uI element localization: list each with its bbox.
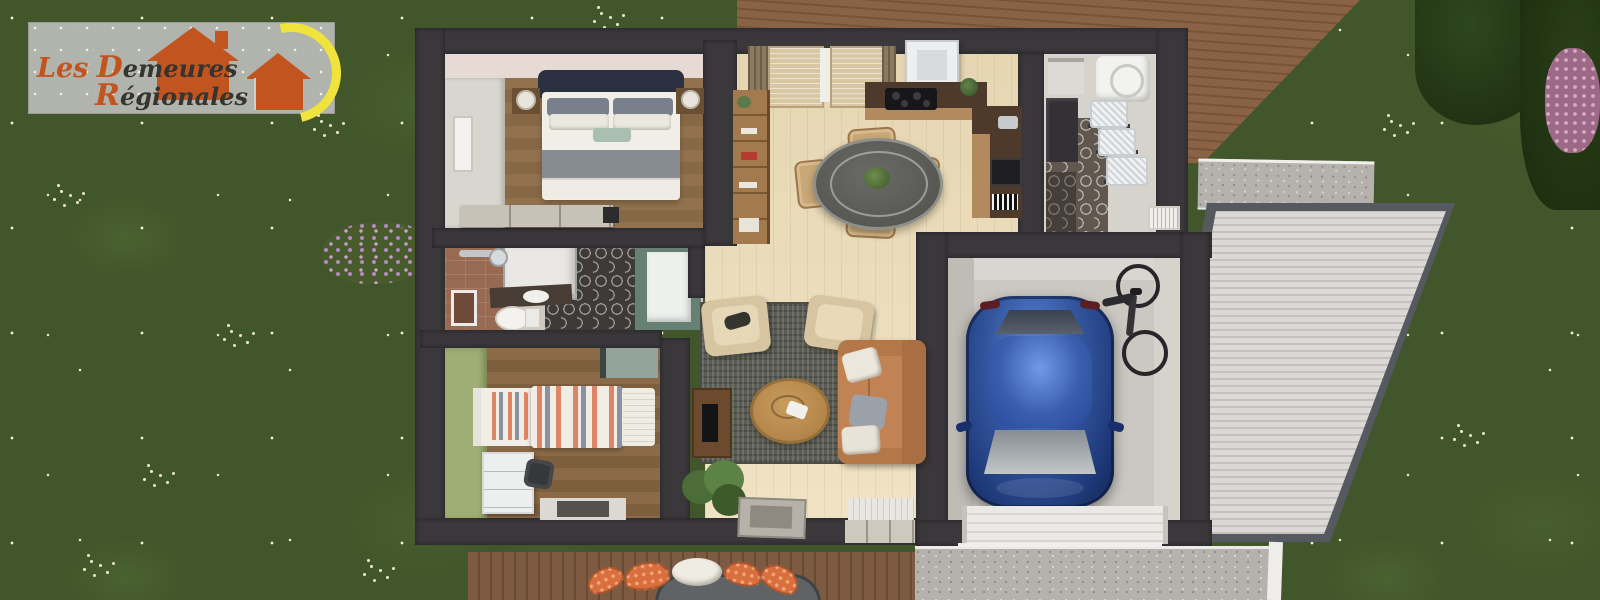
dresser-object <box>603 207 619 223</box>
single-bed <box>473 384 657 450</box>
bicycle <box>1100 262 1162 374</box>
washing-machine <box>1096 56 1150 102</box>
desk-chair <box>523 458 555 490</box>
counter-inner-face <box>972 134 990 218</box>
duvet-foot <box>542 178 680 198</box>
storage-basket <box>1098 128 1136 156</box>
logo-word-les: Les <box>37 53 88 84</box>
window-divider <box>820 48 830 102</box>
laundry-box <box>1048 58 1084 94</box>
shelf-plant <box>737 96 751 108</box>
tv-unit <box>692 388 732 458</box>
bike-seat <box>1130 288 1142 295</box>
window-blind <box>768 46 824 108</box>
tv-screen <box>702 404 718 442</box>
garage-wall-top <box>916 232 1212 258</box>
shower-head-disc <box>489 248 508 267</box>
accent-pillow <box>593 128 631 142</box>
shelf-item-red <box>741 152 757 160</box>
logo-text-line1: Les Demeures <box>37 53 238 83</box>
car <box>966 296 1114 508</box>
floor-mat <box>540 498 626 520</box>
storage-basket <box>1106 156 1148 186</box>
garage-wall-right <box>1180 232 1210 546</box>
wall-niche <box>453 116 473 172</box>
company-logo-panel: Les Demeures Régionales <box>28 22 335 114</box>
flower-cluster <box>600 12 603 15</box>
flower-cluster <box>90 560 93 563</box>
bike-wheel <box>1122 330 1168 376</box>
bathroom-wall-niche <box>451 290 477 326</box>
garage-door-threshold <box>958 543 1162 547</box>
wall-left <box>415 28 445 545</box>
table-lamp <box>516 90 536 110</box>
wall-hall-living <box>688 246 705 298</box>
logo-small-house-body <box>254 78 303 110</box>
cooktop <box>885 88 937 110</box>
hood-vent <box>917 50 947 80</box>
wall-heater <box>1148 206 1180 230</box>
sofa-pillow <box>841 425 881 456</box>
pink-flowering-tree <box>1545 48 1600 153</box>
driveway-edge-strip <box>1267 542 1283 600</box>
garage-door <box>962 506 1168 544</box>
floor-plan-scene: Les Demeures Régionales <box>0 0 1600 600</box>
burner <box>901 100 908 107</box>
armchair <box>700 295 771 358</box>
front-door <box>845 520 915 543</box>
doormat-center <box>750 505 793 528</box>
master-dresser <box>461 205 613 227</box>
striped-pillow <box>487 392 529 440</box>
pink-shrub <box>322 222 430 284</box>
gravel-driveway <box>915 546 1273 600</box>
laundry-floor-shadow <box>1046 172 1076 232</box>
logo-word-regionales-initial: R <box>95 78 120 113</box>
duvet-folded-end <box>623 388 655 446</box>
corner-cabinet <box>600 348 658 378</box>
burner <box>913 92 921 100</box>
flower-cluster <box>1390 120 1393 123</box>
burner <box>892 92 900 100</box>
flower-cluster <box>320 120 323 123</box>
flower-cluster <box>150 470 153 473</box>
outdoor-cushion-white <box>672 558 722 586</box>
shelf-item <box>739 182 757 188</box>
laundry-appliance <box>1046 98 1078 162</box>
flower-cluster <box>230 330 233 333</box>
kitchen-counter-right <box>972 106 1022 218</box>
oven <box>990 158 1022 186</box>
duvet-band <box>542 150 680 178</box>
wall-bathroom-bedroom2 <box>420 330 662 348</box>
nightstand <box>512 88 540 114</box>
wall-bedroom-living <box>703 40 737 246</box>
small-appliance <box>992 194 1018 210</box>
flower-cluster <box>370 565 373 568</box>
coffee-table <box>750 378 830 444</box>
washer-drum <box>1110 64 1144 98</box>
sofa-back <box>902 340 926 464</box>
storage-basket <box>1090 100 1128 128</box>
flower-cluster <box>60 190 63 193</box>
car-hood-shine <box>996 478 1084 498</box>
car-roof <box>988 336 1092 428</box>
floor-mat-center <box>557 501 609 517</box>
flower-cluster <box>1460 430 1463 433</box>
master-bed <box>535 70 687 202</box>
dining-table <box>813 138 943 230</box>
table-lamp <box>681 90 700 109</box>
wall-bedroom-bathroom <box>432 228 705 248</box>
bookshelf <box>733 90 770 244</box>
toilet-tank <box>525 308 540 328</box>
teal-unit-panel <box>647 252 691 322</box>
armchair-cushion <box>814 303 864 343</box>
logo-text-line2: Régionales <box>95 81 248 111</box>
sofa <box>838 340 926 464</box>
logo-house-chimney <box>215 31 228 49</box>
nightstand <box>676 88 704 114</box>
vanity-sink <box>523 290 549 303</box>
logo-word-demeures-rest: emeures <box>123 54 238 83</box>
shelf-item <box>741 128 757 134</box>
room-bathroom <box>445 246 703 330</box>
logo-word-regionales-rest: égionales <box>120 82 248 111</box>
doormat-entry <box>737 497 806 539</box>
table-centerpiece-plant <box>864 167 890 189</box>
car-windshield <box>984 430 1096 474</box>
shelf-box <box>739 218 759 232</box>
striped-duvet <box>531 386 623 448</box>
counter-plant <box>960 78 978 96</box>
burner <box>923 100 930 107</box>
kitchen-sink <box>998 116 1018 129</box>
